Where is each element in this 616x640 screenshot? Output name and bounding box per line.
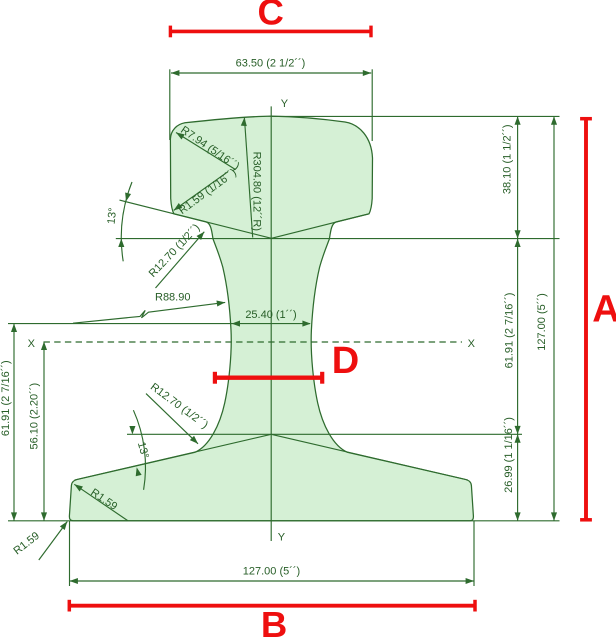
svg-text:Y: Y <box>278 532 286 544</box>
svg-text:Y: Y <box>281 98 289 110</box>
svg-text:127.00 (5´´): 127.00 (5´´) <box>243 566 300 578</box>
svg-text:R88.90: R88.90 <box>155 292 190 304</box>
svg-text:25.40 (1´´): 25.40 (1´´) <box>245 309 296 321</box>
svg-text:X: X <box>28 338 36 350</box>
svg-text:61.91 (2 7/16´´): 61.91 (2 7/16´´) <box>504 293 516 369</box>
svg-text:61.91 (2 7/16´´): 61.91 (2 7/16´´) <box>0 360 12 436</box>
svg-text:38.10 (1 1/2´´): 38.10 (1 1/2´´) <box>501 124 513 194</box>
svg-text:63.50 (2 1/2´´): 63.50 (2 1/2´´) <box>236 58 306 70</box>
svg-text:13°: 13° <box>106 207 120 225</box>
svg-text:X: X <box>468 338 476 350</box>
svg-text:B: B <box>261 604 287 640</box>
svg-text:D: D <box>332 340 359 382</box>
svg-text:26.99 (1 1/16´´): 26.99 (1 1/16´´) <box>503 417 515 493</box>
svg-text:R304.80 (12´´R): R304.80 (12´´R) <box>251 152 263 231</box>
svg-text:A: A <box>592 289 616 331</box>
svg-text:56.10 (2.20´´): 56.10 (2.20´´) <box>29 383 41 450</box>
svg-text:C: C <box>258 0 284 33</box>
svg-text:127.00 (5´´): 127.00 (5´´) <box>536 293 548 350</box>
